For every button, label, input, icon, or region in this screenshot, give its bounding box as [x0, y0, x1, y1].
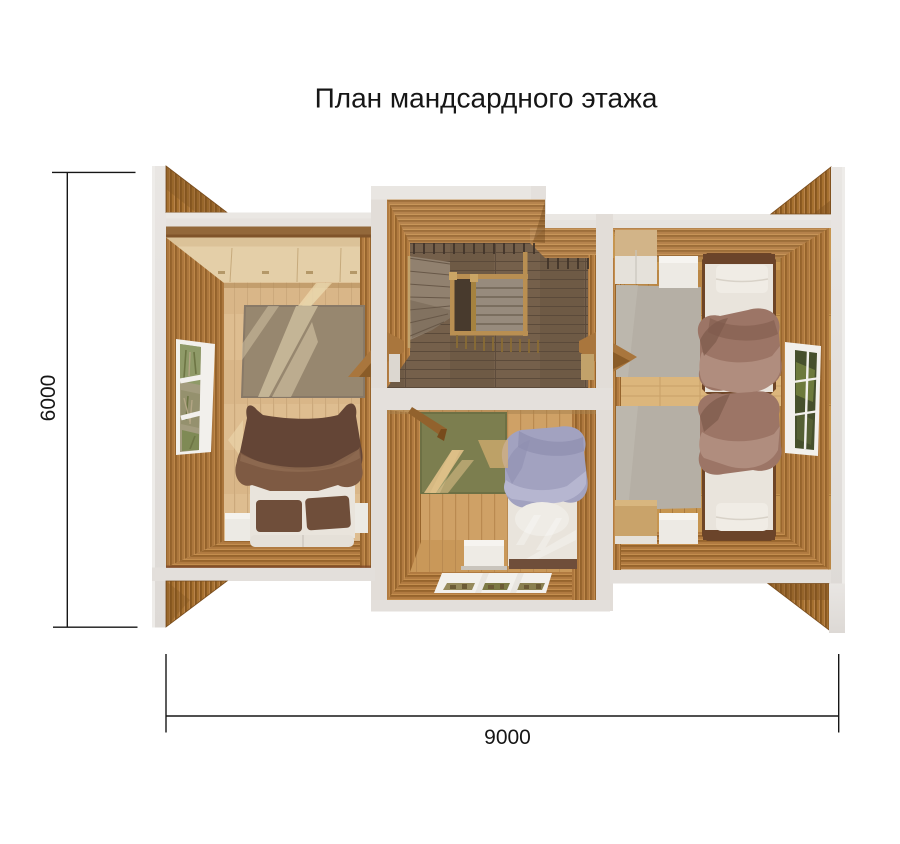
svg-text:6000: 6000 [37, 375, 60, 422]
svg-text:9000: 9000 [484, 726, 531, 749]
svg-text:План мандсардного этажа: План мандсардного этажа [315, 83, 658, 114]
